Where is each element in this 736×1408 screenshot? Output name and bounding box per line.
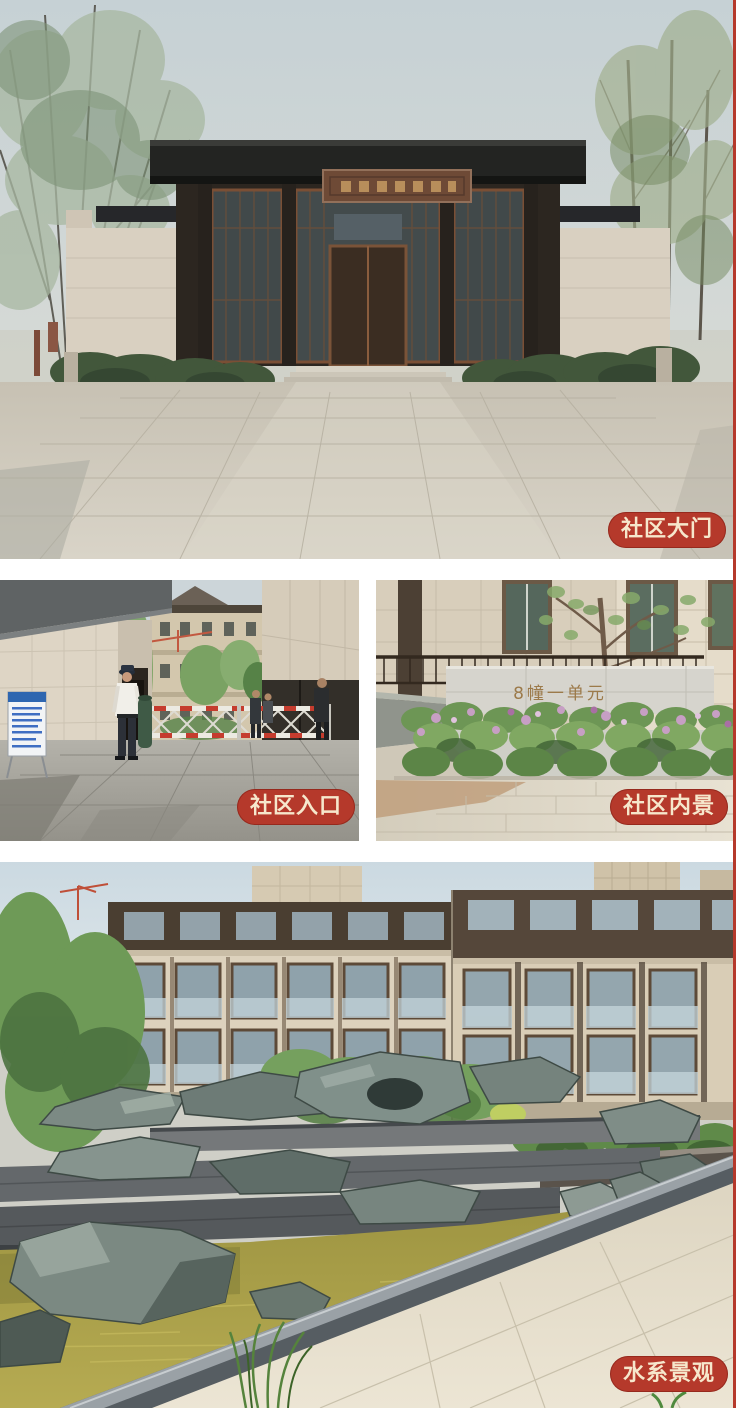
trash-bin [138,698,152,748]
gate-photo: 社区大门 [0,0,736,559]
middle-photo-row: 社区入口 [0,580,736,841]
entrance-photo: 社区入口 [0,580,359,841]
water-label-badge: 水系景观 [610,1356,728,1392]
photo-grid: 社区大门 [0,0,736,1408]
interior-label-badge: 社区内景 [610,789,728,825]
entrance-label-badge: 社区入口 [237,789,355,825]
unit-sign-wall: 8幢一单元 [446,666,714,714]
gate-label-badge: 社区大门 [608,512,726,548]
unit-wall-sign-text: 8幢一单元 [513,684,607,704]
water-photo: 水系景观 [0,862,736,1408]
photo-collage-page: 社区大门 [0,0,736,1408]
water-scene-illustration [0,862,736,1408]
gate-scene-illustration [0,0,736,559]
gate-building [66,140,670,382]
flower-bed [394,702,736,781]
gate-plaque [323,170,471,202]
interior-photo: 8幢一单元 [376,580,736,841]
